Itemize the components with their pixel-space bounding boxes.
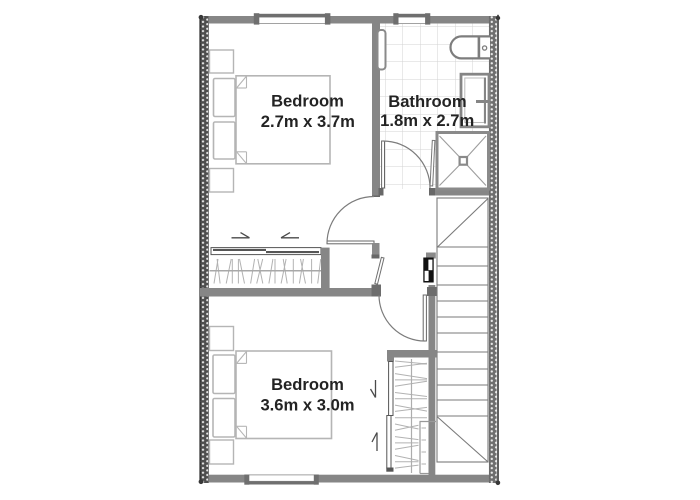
svg-text:1.8m x 2.7m: 1.8m x 2.7m <box>380 111 474 130</box>
svg-text:3.6m x 3.0m: 3.6m x 3.0m <box>260 396 354 415</box>
svg-text:2.7m x 3.7m: 2.7m x 3.7m <box>261 112 355 131</box>
svg-text:Bedroom: Bedroom <box>271 375 344 394</box>
svg-text:Bathroom: Bathroom <box>388 92 466 111</box>
svg-text:Bedroom: Bedroom <box>271 92 344 111</box>
